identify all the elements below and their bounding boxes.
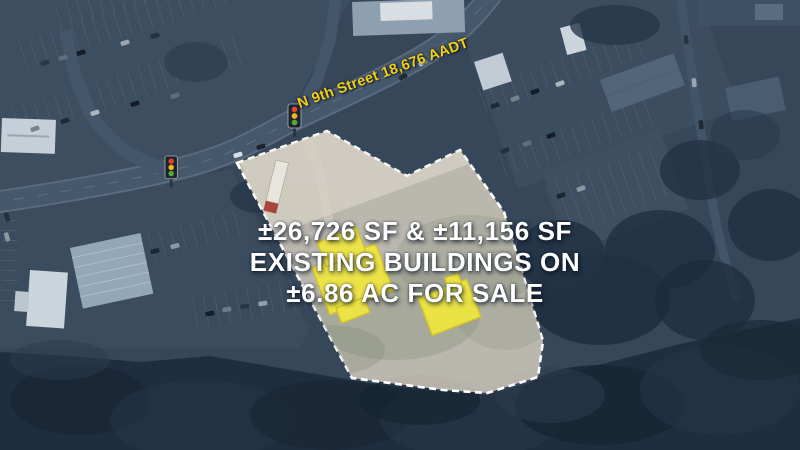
rooftop [1, 118, 56, 154]
headline-line-3: ±6.86 AC FOR SALE [30, 278, 800, 309]
rooftop [755, 4, 783, 20]
rooftop [352, 0, 465, 36]
aerial-marketing-slide: N 9th Street 18,676 AADT ±26,726 SF & ±1… [0, 0, 800, 450]
rooftop [698, 0, 800, 26]
headline: ±26,726 SF & ±11,156 SF EXISTING BUILDIN… [30, 216, 800, 309]
headline-line-1: ±26,726 SF & ±11,156 SF [30, 216, 800, 247]
headline-line-2: EXISTING BUILDINGS ON [30, 247, 800, 278]
